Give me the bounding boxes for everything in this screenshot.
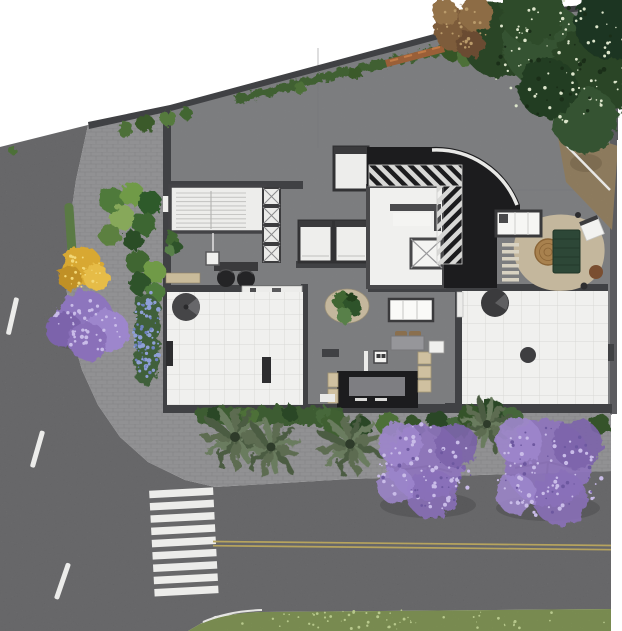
kitchen-appliance-counter (389, 299, 433, 321)
reception-desk (214, 262, 258, 271)
lobby-hall (368, 186, 444, 287)
siteplan-canvas (0, 0, 622, 631)
margin-right-lower (611, 415, 622, 631)
sign-box (206, 252, 219, 265)
floor-lamp (575, 212, 581, 218)
stairwell (170, 186, 265, 232)
round-table-small (520, 347, 536, 363)
side-table (429, 341, 444, 353)
crosswalk (149, 487, 218, 596)
hazard-stripes-top (369, 165, 462, 186)
right-terrace (457, 289, 608, 404)
flower-bed (132, 291, 161, 384)
jacaranda-tree-bottom-right (496, 418, 604, 525)
terrace-bench (262, 357, 271, 383)
elevator-cab (335, 221, 368, 262)
wood-bench (166, 273, 200, 283)
dirt-shadow (570, 154, 602, 172)
left-terrace (166, 292, 303, 405)
kitchenette (496, 211, 541, 236)
plant-pot (589, 265, 603, 279)
shaft-cell (263, 207, 280, 224)
side-stool (581, 283, 588, 290)
elevator-top (334, 147, 368, 190)
lounge (496, 211, 605, 291)
shaft-cell (263, 226, 280, 243)
bar-planter (325, 289, 369, 323)
margin-right-upper (617, 140, 622, 420)
bar-counter (337, 371, 418, 408)
kitchen-sink (374, 351, 387, 363)
lobby-floor (368, 186, 444, 287)
terrace-door (457, 292, 463, 317)
hazard-stripes-side (437, 186, 462, 264)
green-sofa (553, 230, 580, 273)
elevator-cab (299, 221, 332, 262)
terrace-bench (166, 341, 173, 366)
shaft-cell (263, 245, 280, 262)
shaft-cell (263, 188, 280, 205)
elevator-bank (299, 221, 368, 262)
fire-table (172, 293, 200, 321)
wall-stub-bar (322, 349, 339, 357)
lobby-counter (393, 213, 431, 226)
round-table-large (481, 289, 509, 317)
siteplan-rendering (0, 0, 622, 631)
white-ledge (320, 394, 335, 402)
shaft-column (263, 188, 280, 262)
lobby-partition (390, 204, 440, 211)
